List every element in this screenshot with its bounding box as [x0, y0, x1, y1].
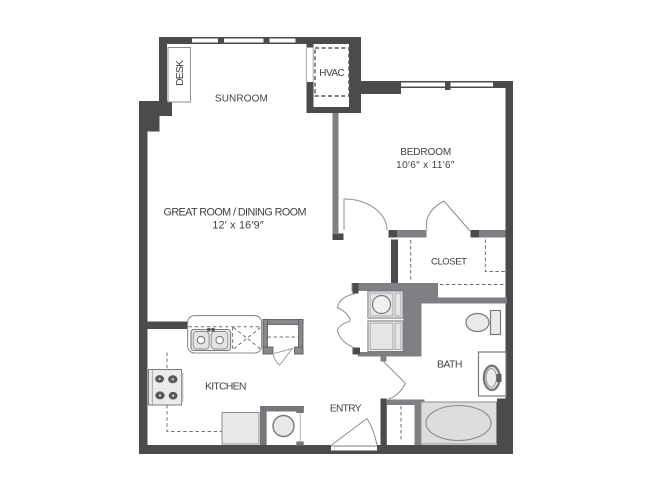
- svg-text:10′6″ x 11′6″: 10′6″ x 11′6″: [396, 160, 455, 171]
- svg-text:BEDROOM: BEDROOM: [400, 147, 451, 158]
- svg-text:SUNROOM: SUNROOM: [215, 94, 268, 105]
- svg-text:DESK: DESK: [174, 60, 186, 86]
- svg-text:ENTRY: ENTRY: [330, 404, 362, 415]
- svg-text:HVAC: HVAC: [319, 68, 345, 79]
- svg-text:CLOSET: CLOSET: [431, 257, 467, 268]
- svg-text:KITCHEN: KITCHEN: [205, 381, 247, 393]
- svg-text:12′ x 16′9″: 12′ x 16′9″: [212, 219, 263, 231]
- svg-text:GREAT ROOM / DINING ROOM: GREAT ROOM / DINING ROOM: [164, 207, 307, 219]
- svg-text:BATH: BATH: [437, 359, 463, 371]
